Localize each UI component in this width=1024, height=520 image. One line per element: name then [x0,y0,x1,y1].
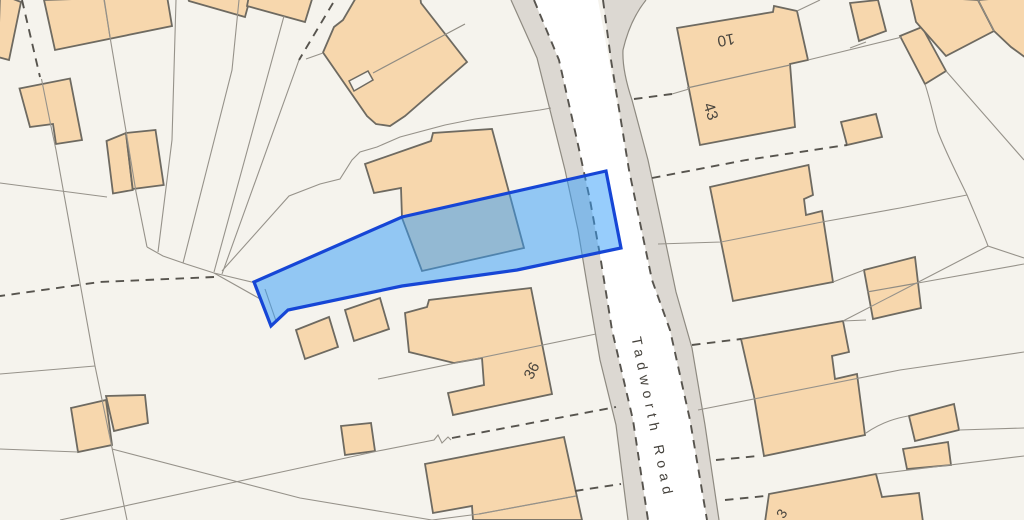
svg-text:10: 10 [715,29,736,49]
